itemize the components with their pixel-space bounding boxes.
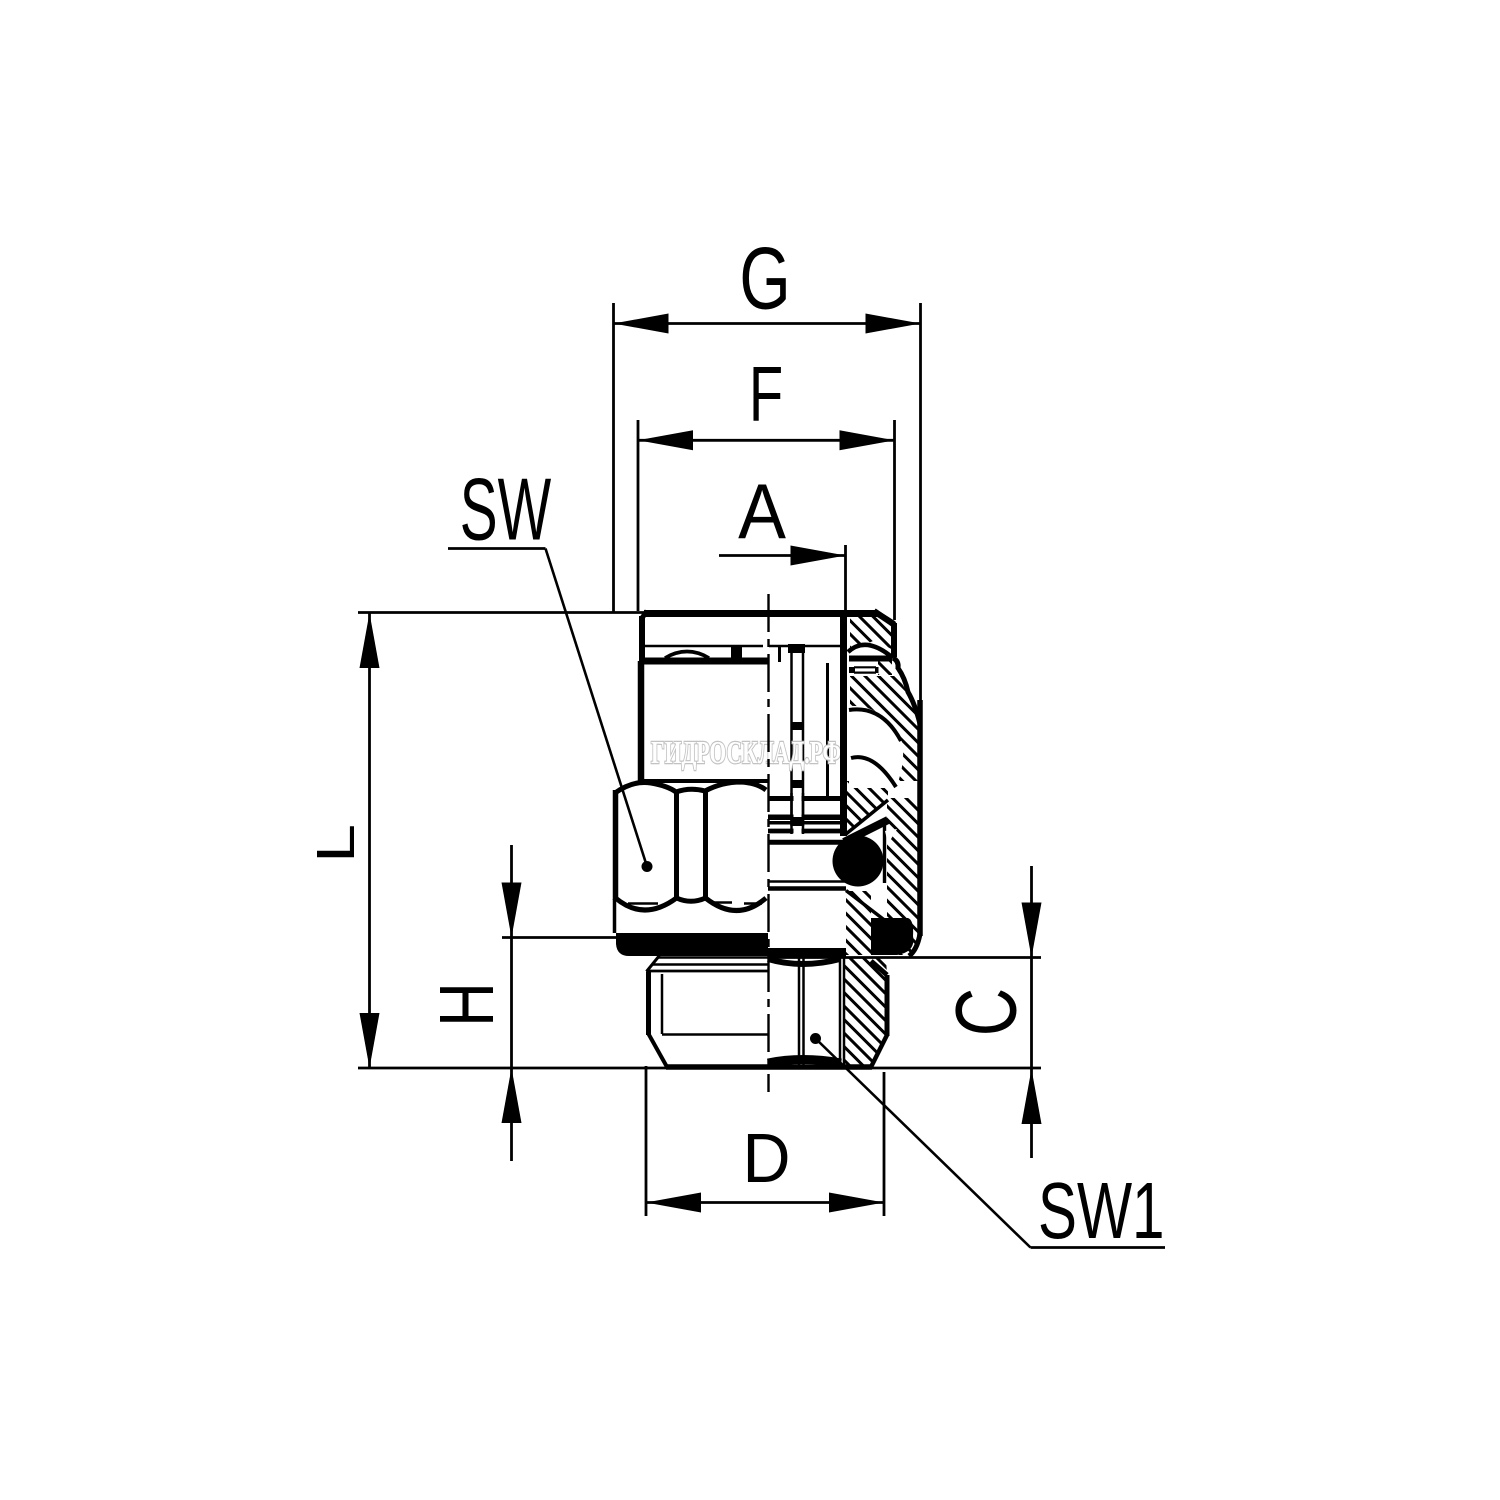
svg-text:G: G: [739, 230, 790, 327]
svg-text:H: H: [423, 982, 509, 1026]
svg-text:SW1: SW1: [1038, 1166, 1165, 1255]
svg-text:D: D: [742, 1119, 790, 1197]
svg-text:SW: SW: [460, 460, 552, 559]
svg-text:L: L: [306, 824, 366, 863]
svg-text:A: A: [738, 467, 786, 554]
svg-text:C: C: [939, 988, 1035, 1036]
svg-text:F: F: [749, 351, 783, 438]
svg-text:ГИДРОСКЛАД.РФ: ГИДРОСКЛАД.РФ: [651, 734, 841, 770]
